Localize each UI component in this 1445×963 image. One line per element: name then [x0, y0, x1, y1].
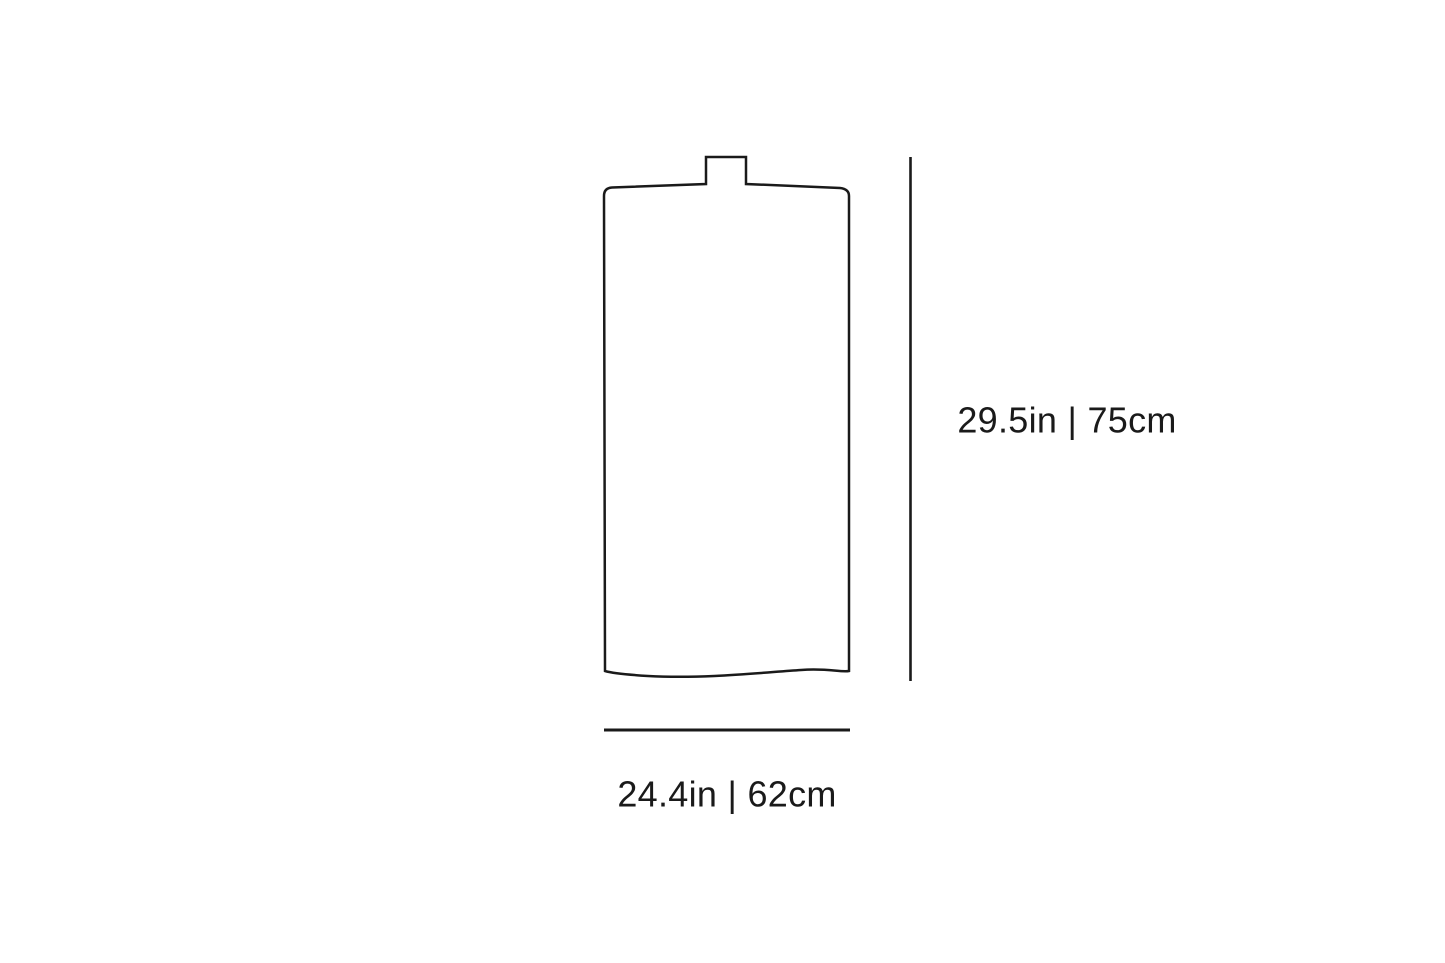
width-dimension-label: 24.4in | 62cm: [617, 772, 836, 815]
height-dimension-label: 29.5in | 75cm: [957, 398, 1176, 441]
dimension-diagram: 29.5in | 75cm 24.4in | 62cm: [0, 0, 1445, 963]
object-outline: [604, 157, 849, 677]
diagram-canvas: [0, 0, 1445, 963]
